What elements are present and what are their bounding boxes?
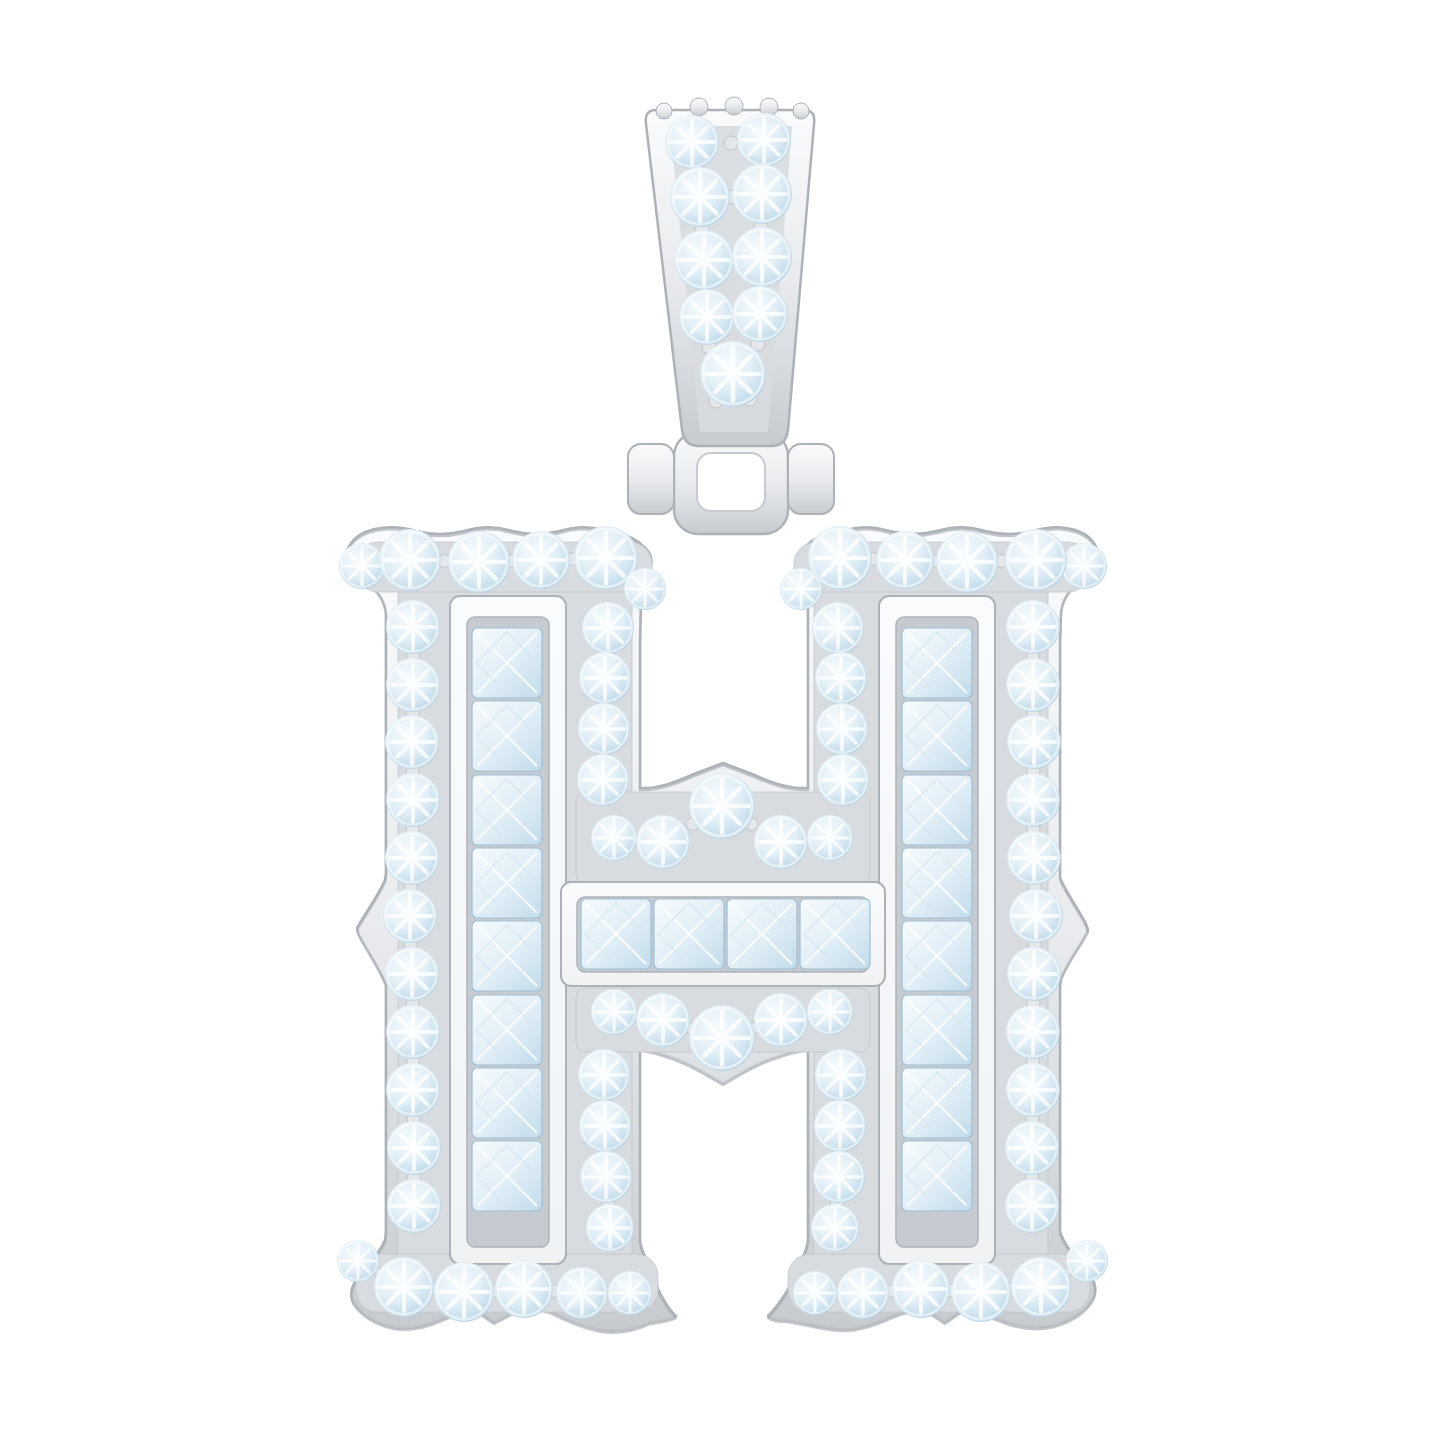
- princess-stone: [472, 628, 542, 698]
- round-stone: [876, 531, 934, 589]
- product-photo-stage: Product photograph of a polished white-m…: [0, 0, 1445, 1450]
- round-stone: [1061, 543, 1107, 589]
- round-stone: [689, 1005, 755, 1071]
- hinge-side-prong: [628, 444, 674, 514]
- princess-stone: [902, 775, 972, 845]
- round-stone: [1005, 1121, 1059, 1175]
- princess-stone: [800, 899, 870, 969]
- round-stone: [732, 164, 792, 224]
- round-stone: [813, 1151, 865, 1203]
- round-stone: [386, 773, 440, 827]
- round-stone: [812, 602, 864, 654]
- round-stone: [1006, 773, 1060, 827]
- princess-stone: [902, 1068, 972, 1138]
- prong-dot: [724, 136, 738, 150]
- round-stone: [374, 1257, 434, 1317]
- princess-stone: [472, 921, 542, 991]
- round-stone: [1007, 831, 1061, 885]
- round-stone: [578, 1049, 630, 1101]
- round-stone: [386, 1005, 440, 1059]
- round-stone: [383, 889, 437, 943]
- round-stone: [636, 815, 690, 869]
- hinge-ring-opening: [697, 453, 765, 511]
- round-stone: [817, 754, 869, 806]
- round-stone: [1006, 658, 1060, 712]
- princess-stone: [902, 995, 972, 1065]
- round-stone: [807, 815, 853, 861]
- princess-stone: [472, 775, 542, 845]
- round-stone: [385, 715, 439, 769]
- round-stone: [495, 1260, 553, 1318]
- round-stone: [608, 1271, 652, 1315]
- round-stone: [674, 230, 734, 290]
- round-stone: [807, 989, 853, 1035]
- bail-top-bump: [793, 103, 809, 119]
- round-stone: [591, 815, 637, 861]
- hinge-side-prong: [788, 444, 834, 514]
- princess-stone: [902, 701, 972, 771]
- round-stone: [732, 227, 792, 287]
- round-stone: [737, 113, 791, 167]
- round-stone: [578, 703, 630, 755]
- round-stone: [1006, 600, 1060, 654]
- round-stone: [665, 115, 719, 169]
- round-stone: [512, 531, 570, 589]
- round-stone: [1005, 1179, 1059, 1233]
- round-stone: [579, 1100, 631, 1152]
- princess-stone: [902, 1141, 972, 1211]
- round-stone: [811, 1204, 859, 1252]
- round-stone: [754, 815, 808, 869]
- princess-stone: [472, 701, 542, 771]
- round-stone: [936, 531, 998, 593]
- round-stone: [385, 947, 439, 1001]
- round-stone: [1007, 947, 1061, 1001]
- round-stone: [815, 652, 867, 704]
- round-stone: [815, 1049, 867, 1101]
- round-stone: [579, 652, 631, 704]
- round-stone: [379, 529, 441, 591]
- round-stone: [1007, 715, 1061, 769]
- round-stone: [700, 341, 766, 407]
- princess-stone: [902, 628, 972, 698]
- round-stone: [385, 831, 439, 885]
- princess-stone: [727, 899, 797, 969]
- round-stone: [387, 1121, 441, 1175]
- round-stone: [387, 1179, 441, 1233]
- princess-stone: [472, 995, 542, 1065]
- round-stone: [1011, 1257, 1071, 1317]
- princess-stone: [654, 899, 724, 969]
- princess-stone: [902, 921, 972, 991]
- round-stone: [1006, 1005, 1060, 1059]
- round-stone: [580, 1151, 632, 1203]
- round-stone: [1009, 889, 1063, 943]
- round-stone: [586, 1204, 634, 1252]
- round-stone: [780, 568, 822, 610]
- bail-top-bump: [725, 97, 743, 115]
- bail-top-bump: [690, 98, 708, 116]
- round-stone: [556, 1267, 608, 1319]
- round-stone: [591, 989, 637, 1035]
- round-stone: [951, 1262, 1011, 1322]
- round-stone: [582, 602, 634, 654]
- round-stone: [337, 1240, 379, 1282]
- pendant-illustration: Product photograph of a polished white-m…: [0, 0, 1445, 1450]
- round-stone: [624, 568, 666, 610]
- round-stone: [816, 703, 868, 755]
- round-stone: [793, 1271, 837, 1315]
- round-stone: [1006, 1063, 1060, 1117]
- round-stone: [732, 286, 788, 342]
- round-stone: [679, 289, 735, 345]
- princess-stone: [472, 1068, 542, 1138]
- bail-top-bump: [656, 103, 672, 119]
- princess-stone: [581, 899, 651, 969]
- round-stone: [1066, 1240, 1108, 1282]
- round-stone: [434, 1262, 494, 1322]
- round-stone: [754, 993, 808, 1047]
- round-stone: [386, 1063, 440, 1117]
- round-stone: [448, 531, 510, 593]
- round-stone: [892, 1260, 950, 1318]
- round-stone: [670, 167, 730, 227]
- round-stone: [636, 993, 690, 1047]
- round-stone: [814, 1100, 866, 1152]
- round-stone: [689, 773, 755, 839]
- round-stone: [837, 1267, 889, 1319]
- round-stone: [386, 658, 440, 712]
- princess-stone: [472, 848, 542, 918]
- princess-stone: [472, 1141, 542, 1211]
- round-stone: [1005, 529, 1067, 591]
- princess-stone: [902, 848, 972, 918]
- round-stone: [577, 754, 629, 806]
- round-stone: [386, 600, 440, 654]
- round-stone: [339, 543, 385, 589]
